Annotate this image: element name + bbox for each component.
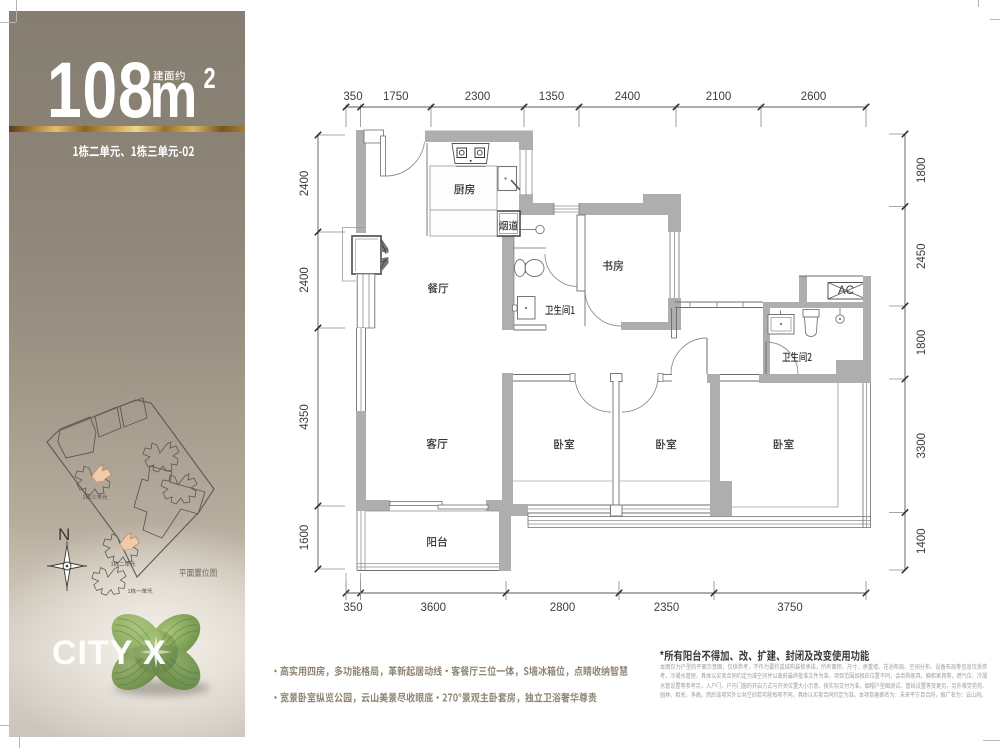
svg-text:4350: 4350 [299,404,311,430]
svg-text:2400: 2400 [299,171,311,197]
svg-text:AC: AC [838,285,854,297]
svg-text:1800: 1800 [916,157,928,183]
svg-text:1800: 1800 [916,330,928,356]
svg-text:2350: 2350 [654,602,680,614]
svg-text:3750: 3750 [777,602,803,614]
svg-text:1350: 1350 [539,91,565,103]
svg-text:2450: 2450 [916,243,928,269]
svg-text:1600: 1600 [299,525,311,551]
svg-text:2400: 2400 [615,91,641,103]
svg-text:1400: 1400 [916,528,928,554]
svg-text:3300: 3300 [916,433,928,459]
svg-text:350: 350 [343,91,362,103]
svg-text:3600: 3600 [421,602,447,614]
svg-text:2300: 2300 [465,91,491,103]
svg-text:2600: 2600 [801,91,827,103]
svg-text:2800: 2800 [550,602,576,614]
svg-text:2400: 2400 [299,267,311,293]
svg-text:350: 350 [343,602,362,614]
svg-text:2100: 2100 [706,91,732,103]
svg-text:1750: 1750 [383,91,409,103]
